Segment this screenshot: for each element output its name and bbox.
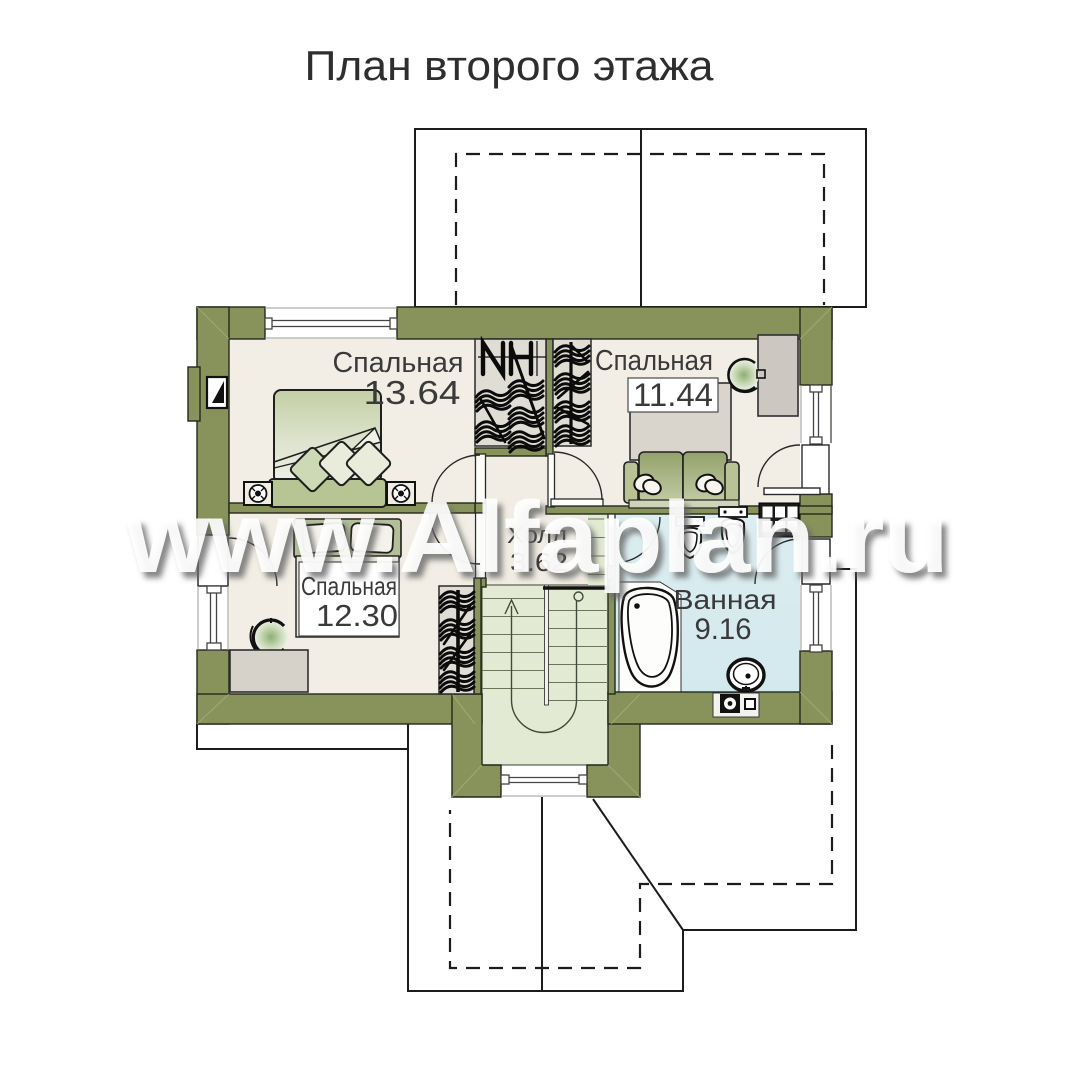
- svg-text:Спальная: Спальная: [595, 345, 713, 377]
- svg-text:www.Alfaplan.ru: www.Alfaplan.ru: [125, 482, 948, 594]
- svg-text:13.64: 13.64: [364, 374, 461, 411]
- svg-text:План второго этажа: План второго этажа: [305, 42, 715, 89]
- svg-text:9.16: 9.16: [695, 613, 752, 646]
- svg-text:12.30: 12.30: [316, 598, 398, 633]
- svg-text:11.44: 11.44: [633, 377, 713, 413]
